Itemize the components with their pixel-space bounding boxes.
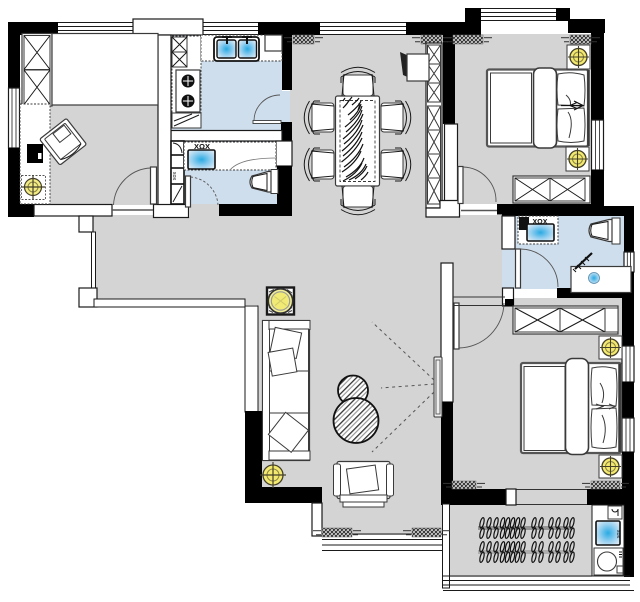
svg-text:xox: xox <box>615 530 621 539</box>
svg-text:xox: xox <box>171 172 177 181</box>
